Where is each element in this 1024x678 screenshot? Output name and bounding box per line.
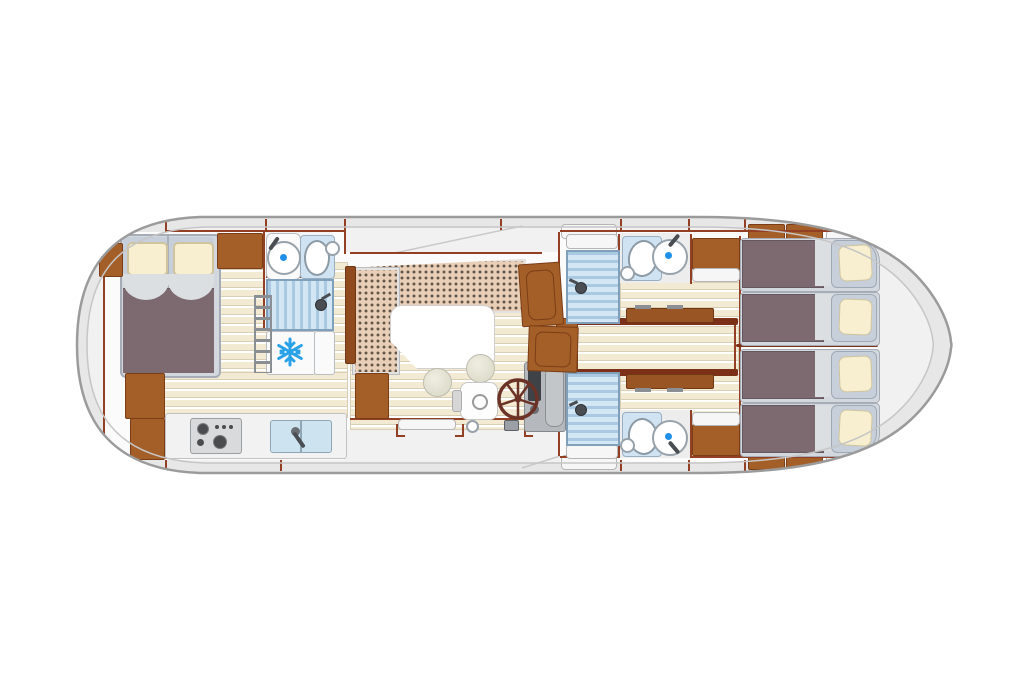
bulkhead-tick (744, 460, 746, 471)
fridge (266, 331, 316, 375)
bow-fitting-icon (946, 336, 960, 354)
door-stop (455, 424, 464, 437)
cabinet (130, 418, 165, 460)
pillow (173, 242, 214, 276)
cabinet (692, 424, 740, 456)
fold-table (626, 308, 714, 323)
single-bed (740, 403, 880, 457)
stool (466, 354, 495, 383)
table-bracket (667, 388, 683, 392)
table-bracket (635, 305, 651, 309)
fold-table (626, 374, 714, 389)
wardrobe (99, 243, 123, 277)
snowflake-fridge-icon (273, 335, 307, 369)
wall (344, 230, 346, 254)
knob (215, 425, 219, 429)
double-bed-frame (120, 234, 221, 378)
ladder-steps-icon (254, 295, 272, 373)
wall (560, 230, 860, 232)
single-bed (740, 292, 880, 346)
wall (734, 318, 736, 376)
wall (350, 252, 542, 254)
bulkhead-tick (688, 219, 690, 230)
bulkhead-tick (165, 219, 167, 230)
shower-aft-top (566, 250, 620, 324)
console-door (545, 367, 564, 427)
stove-burners-icon (190, 418, 242, 454)
sofa-side-cabinet (345, 266, 356, 364)
bulkhead-tick (688, 460, 690, 471)
seat-rail (452, 390, 462, 412)
wall (165, 230, 345, 232)
duvet (742, 405, 824, 453)
duvet (742, 240, 824, 288)
corridor-planks (575, 326, 739, 371)
bulkhead-tick (265, 219, 267, 230)
wheelhouse-door (518, 262, 564, 328)
bulkhead-tick (280, 460, 282, 471)
shower-head-icon (315, 299, 327, 311)
cabinet (692, 238, 740, 270)
door-panel (525, 269, 556, 321)
shower-arm (569, 278, 578, 285)
knob (222, 425, 226, 429)
bulkhead-tick (620, 460, 622, 471)
shower-head-icon (575, 404, 587, 416)
shower-aft-bottom (566, 372, 620, 446)
pillow (838, 355, 872, 392)
shelf (566, 444, 618, 459)
faucet-dot (665, 252, 672, 259)
bulkhead-tick (165, 460, 167, 471)
pillow (838, 298, 872, 335)
burner (197, 423, 209, 435)
shelf (692, 412, 740, 426)
burner-small (197, 439, 204, 446)
bulkhead-tick (500, 219, 502, 230)
table-bracket (635, 388, 651, 392)
duvet (123, 288, 214, 373)
shelf (566, 234, 618, 249)
knob (229, 425, 233, 429)
duvet (742, 351, 824, 399)
bulkhead-tick (620, 219, 622, 230)
pillow (838, 409, 873, 447)
boat-floor-plan (0, 0, 1024, 678)
cabinet (125, 373, 165, 419)
faucet-dot (280, 254, 287, 261)
toilet-paper-holder (620, 266, 635, 281)
toilet-paper-holder (325, 241, 340, 256)
seat-swivel (472, 394, 488, 410)
burner (213, 435, 227, 449)
pillow (838, 244, 873, 282)
single-bed (740, 238, 880, 292)
stool (423, 368, 452, 397)
bulkhead-tick (344, 219, 346, 230)
single-bed (740, 349, 880, 403)
shower-forward (266, 279, 334, 331)
deck-fitting (466, 420, 479, 433)
galley-front-planks (160, 372, 348, 418)
steering-wheel-icon (494, 375, 542, 423)
shelf (692, 268, 740, 282)
toilet-paper-holder (620, 438, 635, 453)
duvet (742, 294, 824, 342)
bulkhead-tick (744, 219, 746, 230)
door-panel (534, 331, 571, 367)
table-bracket (667, 305, 683, 309)
shower-arm (321, 293, 331, 301)
helm-seat (460, 382, 498, 420)
wardrobe (217, 233, 263, 269)
wheelhouse-door (527, 325, 579, 373)
entry-step (398, 419, 456, 430)
cabinet (355, 373, 389, 419)
faucet-dot (665, 433, 672, 440)
fridge-door (314, 331, 335, 375)
door-stop (396, 424, 405, 437)
galley-sink (270, 420, 332, 453)
pillow (127, 242, 168, 276)
